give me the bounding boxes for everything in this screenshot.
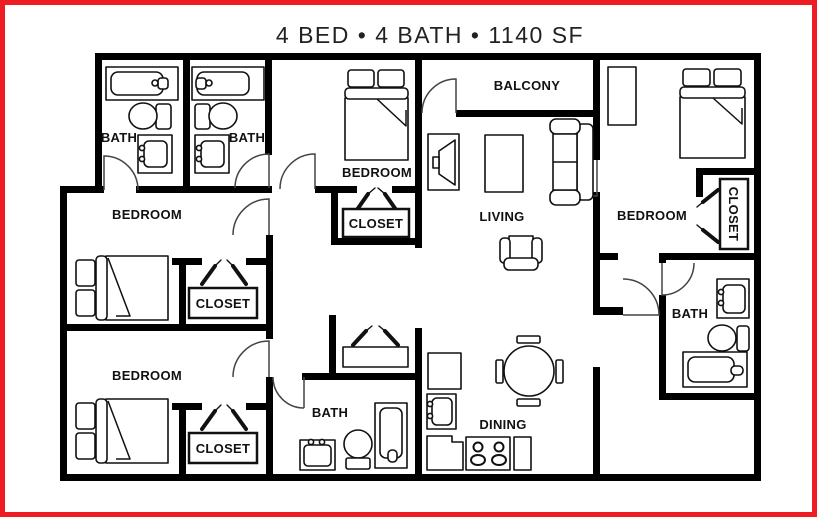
kitchen-counter-icon [427,436,463,470]
sink-icon [195,135,229,173]
toilet-icon [129,103,171,129]
room-label-bedroom: BEDROOM [112,207,182,222]
shower-icon [375,403,407,468]
kitchen-sink-icon [427,394,456,429]
bath-bottom-middle: BATH [300,403,407,470]
dining-room: DINING [427,336,563,470]
room-label-balcony: BALCONY [494,78,560,93]
closet-label: CLOSET [349,216,404,231]
refrigerator-icon [428,353,461,389]
clothes-hanger-icon [353,326,398,345]
kitchen-counter-icon [514,437,531,470]
clothes-hanger-icon [202,260,246,284]
sink-icon [717,279,749,318]
bathtub-icon [106,67,178,100]
room-label-bath: BATH [312,405,348,420]
sofa-icon [550,119,593,205]
floor-plan-drawing: 4 BED • 4 BATH • 1140 SF [0,0,817,517]
room-label-bath: BATH [229,130,265,145]
room-label-bath: BATH [672,306,708,321]
plan-title: 4 BED • 4 BATH • 1140 SF [276,22,584,48]
tv-icon [428,134,459,190]
room-label-dining: DINING [479,417,526,432]
toilet-icon [708,325,749,351]
room-label-bedroom: BEDROOM [617,208,687,223]
coffee-table-icon [485,135,523,192]
toilet-icon [344,430,372,469]
clothes-hanger-icon [697,190,718,242]
room-label-bath: BATH [101,130,137,145]
dresser-icon [608,67,636,125]
room-label-bedroom: BEDROOM [342,165,412,180]
double-bed-icon [680,69,745,158]
bedroom-bottom-left: BEDROOM CLOSET [76,368,257,463]
room-label-living: LIVING [479,209,524,224]
double-bed-icon [345,70,408,160]
closet-shelf-icon [343,347,408,367]
room-label-bedroom: BEDROOM [112,368,182,383]
bath-middle-right: BATH [672,279,749,387]
bedroom-right: BEDROOM CLOSET [608,67,748,249]
clothes-hanger-icon [202,405,246,429]
bedroom-top-middle: BEDROOM CLOSET [342,70,412,237]
bathtub-icon [683,352,747,387]
toilet-icon [195,103,237,129]
closet-label: CLOSET [726,187,741,242]
armchair-icon [500,236,542,270]
double-bed-icon [76,256,168,320]
closet-label: CLOSET [196,441,251,456]
linen-closet [343,326,408,367]
closet-label: CLOSET [196,296,251,311]
sink-icon [300,439,335,470]
living-room: LIVING [428,119,593,270]
floor-plan-page: 4 BED • 4 BATH • 1140 SF [0,0,817,517]
sink-icon [138,135,172,173]
double-bed-icon [76,399,168,463]
bedroom-middle-left: BEDROOM CLOSET [76,207,257,320]
dining-table-icon [504,346,554,396]
bathtub-icon [192,67,264,100]
stove-icon [466,437,510,470]
